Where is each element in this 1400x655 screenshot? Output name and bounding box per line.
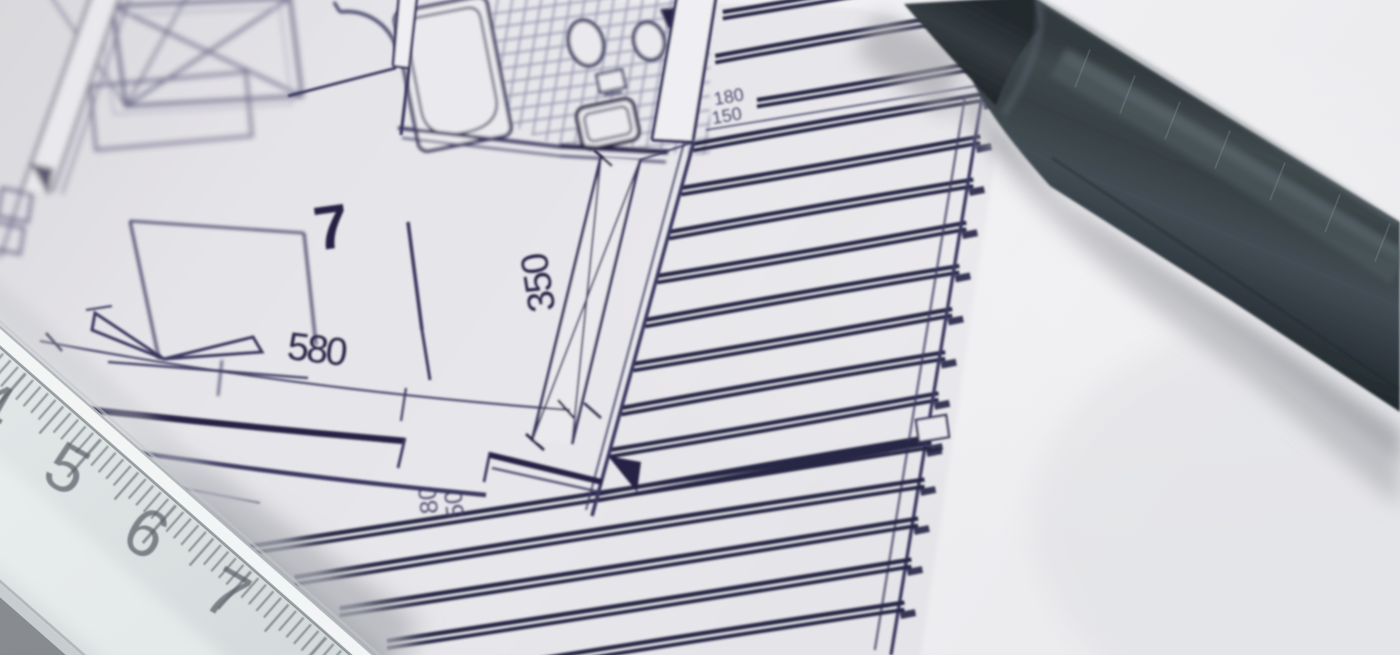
svg-text:50: 50 — [439, 489, 470, 520]
svg-text:580: 580 — [285, 325, 349, 375]
